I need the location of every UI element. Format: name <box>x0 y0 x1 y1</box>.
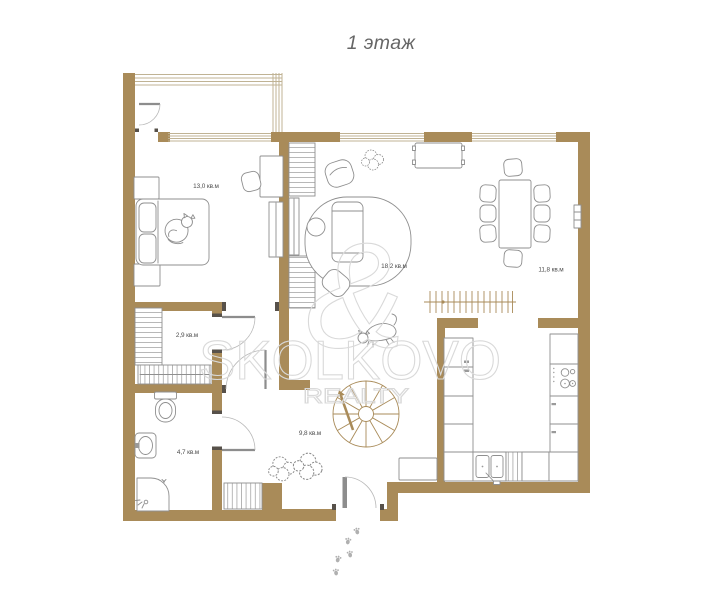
railing <box>424 291 516 313</box>
radiator <box>224 483 262 509</box>
cabinet <box>550 334 578 364</box>
bedroom-window <box>168 134 271 142</box>
cabinet <box>522 452 549 481</box>
bathroom: 4,7 кв.м <box>135 392 199 511</box>
page-title: 1 этаж <box>347 32 417 54</box>
plant-icon <box>290 449 326 483</box>
living-window <box>340 134 424 142</box>
stove <box>550 364 578 396</box>
room-label-dining: 11,8 кв.м <box>538 267 563 274</box>
watermark-brand: SKOLKOVO <box>199 329 501 391</box>
shoe-bench <box>399 458 437 480</box>
bench <box>415 143 462 168</box>
toilet <box>155 392 177 422</box>
chair <box>534 185 551 203</box>
room-label-bathroom: 4,7 кв.м <box>177 449 199 456</box>
dining-room: 11,8 кв.м <box>479 158 563 273</box>
bathroom-door <box>222 417 255 450</box>
chair <box>534 205 550 222</box>
armchair <box>323 157 356 189</box>
balcony-door <box>139 104 160 125</box>
watermark: & SKOLKOVO REALTY <box>199 211 501 408</box>
cabinet <box>549 452 578 481</box>
desk-chair <box>240 170 262 193</box>
chair <box>480 185 497 203</box>
chair <box>480 205 496 222</box>
shelving <box>135 308 162 365</box>
bedroom: 13,0 кв.м <box>134 156 283 286</box>
nightstand <box>134 177 159 199</box>
floor-plan-page: 1 этаж <box>0 0 720 600</box>
dishwasher <box>506 452 522 481</box>
cabinet <box>550 424 578 452</box>
cabinet <box>444 424 473 452</box>
chair <box>503 249 522 267</box>
chair <box>534 225 551 243</box>
dining-table <box>499 180 531 248</box>
chair <box>503 158 522 177</box>
windows <box>135 73 556 141</box>
cabinet <box>444 396 473 424</box>
floor-plan-canvas: 1 этаж <box>0 0 720 600</box>
pillow <box>139 234 156 263</box>
cabinet <box>444 452 473 481</box>
dining-window <box>472 134 556 142</box>
room-label-bedroom: 13,0 кв.м <box>193 183 219 190</box>
cabinet <box>550 396 578 424</box>
shelf-unit <box>289 143 315 196</box>
pillow <box>139 203 156 232</box>
balcony-window-top <box>135 75 282 86</box>
wall-radiator <box>574 205 581 228</box>
desk <box>260 156 283 197</box>
watermark-sub: REALTY <box>303 385 409 408</box>
room-label-hallway: 9,8 кв.м <box>299 430 321 437</box>
shower <box>136 478 170 511</box>
room-label-closet: 2,9 кв.м <box>176 332 198 339</box>
nightstand <box>134 264 160 286</box>
paw-prints-icon <box>333 527 361 576</box>
sink <box>135 433 156 458</box>
plant-icon <box>362 150 384 170</box>
plant-icon <box>269 457 295 481</box>
entrance-door <box>343 477 377 508</box>
chair <box>479 224 496 242</box>
